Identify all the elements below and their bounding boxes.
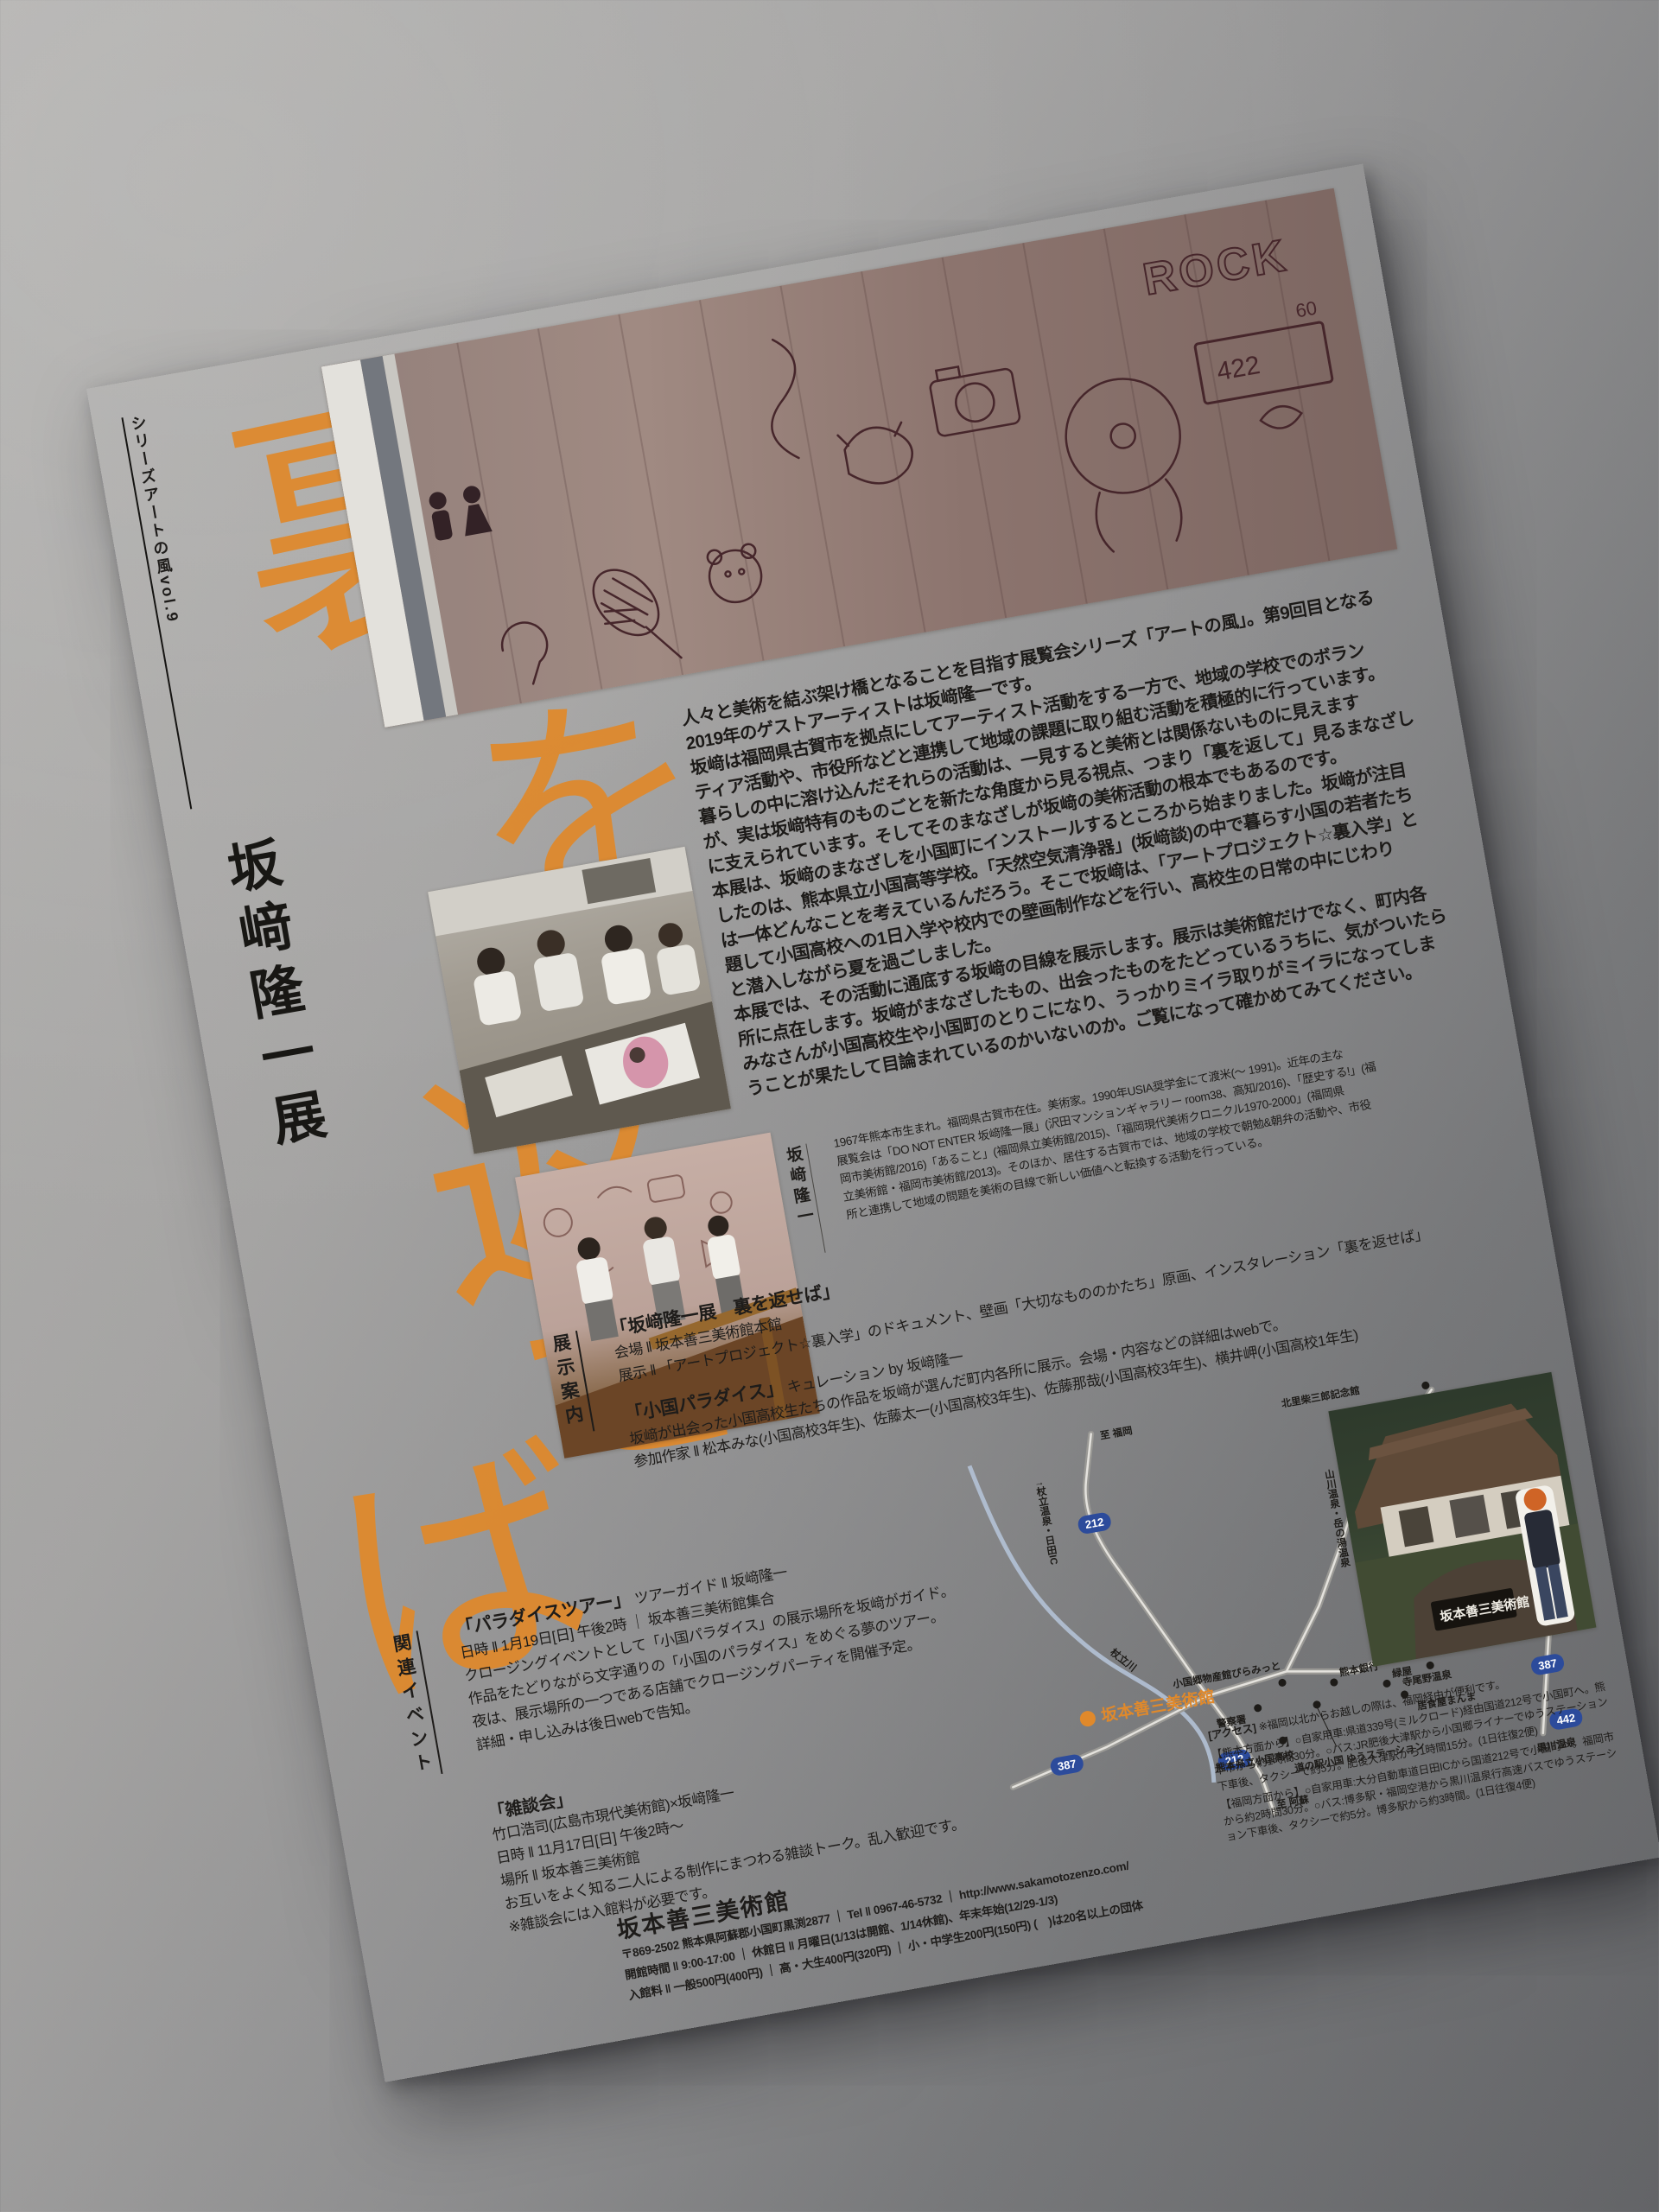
map-label-kitasato: 北里柴三郎記念館 [1281,1384,1361,1410]
map-label-to-fukuoka: 至 福岡 [1099,1424,1134,1441]
museum-photo: 坂本善三美術館 [1328,1372,1596,1667]
map-label-tsuetate: ↑杖立温泉・日田IC [1033,1480,1060,1566]
graffiti-rock-text: ROCK [1140,231,1293,305]
museum-map-dot [1078,1710,1096,1728]
series-label: シリーズアートの風vol.9 [121,414,213,810]
graffiti-422: 422 [1215,351,1262,386]
classroom-photo [428,847,731,1154]
intro-paragraph: 人々と美術を結ぶ架け橋となることを目指す展覧会シリーズ「アートの風」。第9回目と… [679,579,1474,1102]
graffiti-60: 60 [1294,297,1318,322]
bio-label: 坂﨑隆一 [784,1144,826,1257]
exhibition-title: 坂﨑隆一展 [218,835,342,1252]
river-line [969,1433,1215,1815]
flyer-paper: シリーズアートの風vol.9 坂﨑隆一展 裏 を 返 せ ば [86,164,1659,2082]
